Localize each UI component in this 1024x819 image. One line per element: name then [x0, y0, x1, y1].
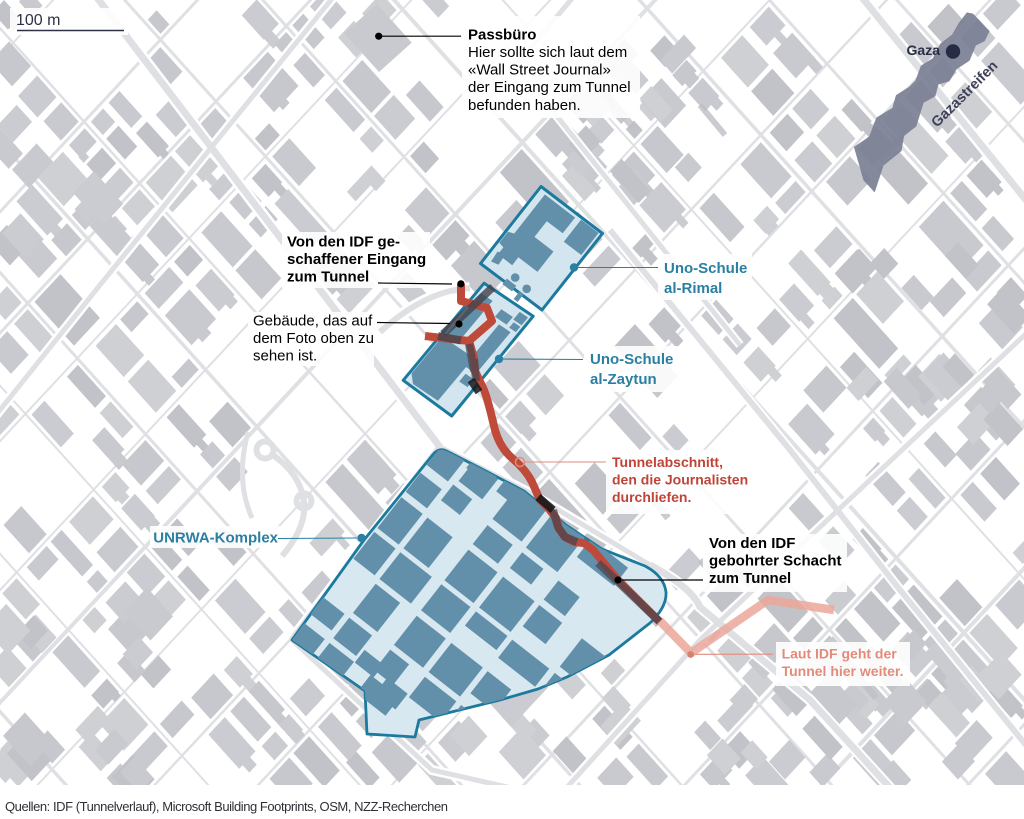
svg-text:Uno-Schule: Uno-Schule: [590, 351, 673, 368]
svg-text:Tunnel hier weiter.: Tunnel hier weiter.: [782, 663, 904, 679]
svg-text:Tunnelabschnitt,: Tunnelabschnitt,: [612, 454, 723, 470]
svg-text:Von den IDF ge-: Von den IDF ge-: [287, 234, 400, 251]
svg-text:durchliefen.: durchliefen.: [612, 489, 691, 505]
svg-text:Hier sollte sich laut dem: Hier sollte sich laut dem: [468, 44, 627, 61]
svg-text:Uno-Schule: Uno-Schule: [664, 260, 747, 277]
svg-text:gebohrter Schacht: gebohrter Schacht: [709, 553, 842, 570]
svg-text:«Wall Street Journal»: «Wall Street Journal»: [468, 62, 611, 79]
svg-text:befunden haben.: befunden haben.: [468, 97, 581, 114]
svg-text:Von den IDF: Von den IDF: [709, 535, 795, 552]
svg-text:zum Tunnel: zum Tunnel: [709, 570, 791, 587]
svg-text:Gebäude, das auf: Gebäude, das auf: [253, 313, 373, 330]
svg-text:Passbüro: Passbüro: [468, 27, 536, 44]
svg-text:al-Rimal: al-Rimal: [664, 280, 722, 297]
svg-text:al-Zaytun: al-Zaytun: [590, 371, 657, 388]
svg-text:schaffener Eingang: schaffener Eingang: [287, 251, 426, 268]
svg-text:Laut IDF geht der: Laut IDF geht der: [782, 645, 898, 661]
svg-text:Gaza: Gaza: [907, 42, 941, 58]
svg-text:zum Tunnel: zum Tunnel: [287, 269, 369, 286]
svg-text:dem Foto oben zu: dem Foto oben zu: [253, 330, 374, 347]
svg-text:der Eingang zum Tunnel: der Eingang zum Tunnel: [468, 79, 631, 96]
svg-text:den die Journalisten: den die Journalisten: [612, 472, 748, 488]
svg-text:100 m: 100 m: [16, 12, 60, 29]
svg-text:UNRWA-Komplex: UNRWA-Komplex: [153, 530, 278, 547]
svg-text:sehen ist.: sehen ist.: [253, 348, 317, 365]
